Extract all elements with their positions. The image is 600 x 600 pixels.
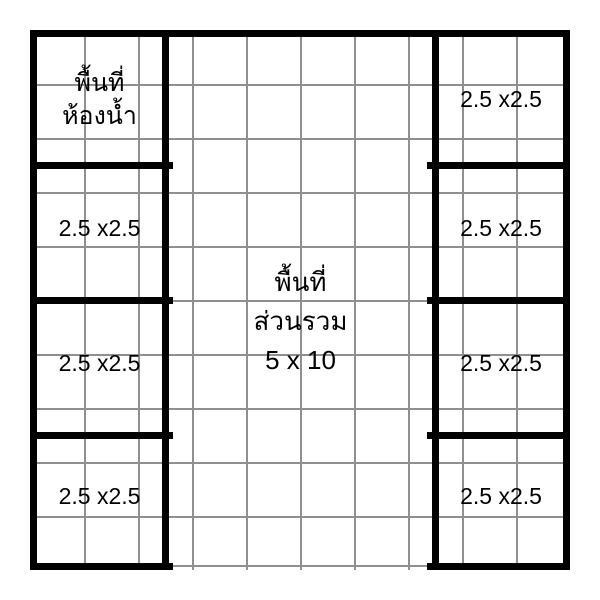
wall-right-separator-2 (427, 297, 570, 304)
wall-right-separator-1 (427, 162, 570, 169)
bathroom-label-line2: ห้องน้ำ (62, 100, 137, 133)
room-right-2-label: 2.5 x2.5 (460, 215, 542, 243)
wall-right-bottom (427, 563, 570, 570)
common-area-label: พื้นที่ ส่วนรวม 5 x 10 (169, 263, 432, 380)
common-area-line3: 5 x 10 (169, 341, 432, 380)
wall-left-bottom (30, 563, 173, 570)
common-area-line2: ส่วนรวม (169, 302, 432, 341)
room-left-4: 2.5 x2.5 (37, 439, 162, 563)
wall-left-separator-1 (30, 162, 173, 169)
floor-plan-canvas: พื้นที่ ห้องน้ำ 2.5 x2.5 2.5 x2.5 2.5 x2… (0, 0, 600, 600)
room-right-1-label: 2.5 x2.5 (460, 86, 542, 114)
room-right-4: 2.5 x2.5 (439, 439, 563, 563)
room-right-2: 2.5 x2.5 (439, 169, 563, 297)
wall-left-separator-2 (30, 297, 173, 304)
room-right-3-label: 2.5 x2.5 (460, 350, 542, 378)
room-left-3: 2.5 x2.5 (37, 304, 162, 432)
room-right-4-label: 2.5 x2.5 (460, 483, 542, 511)
room-left-2-label: 2.5 x2.5 (59, 215, 141, 243)
room-left-3-label: 2.5 x2.5 (59, 350, 141, 378)
wall-left-separator-3 (30, 432, 173, 439)
wall-right-separator-3 (427, 432, 570, 439)
bathroom-label: พื้นที่ ห้องน้ำ (62, 67, 137, 133)
room-right-1: 2.5 x2.5 (439, 37, 563, 162)
common-area-line1: พื้นที่ (169, 263, 432, 302)
room-bathroom: พื้นที่ ห้องน้ำ (37, 37, 162, 162)
room-left-2: 2.5 x2.5 (37, 169, 162, 297)
bathroom-label-line1: พื้นที่ (62, 67, 137, 100)
room-right-3: 2.5 x2.5 (439, 304, 563, 432)
wall-top (30, 30, 570, 37)
floor-plan: พื้นที่ ห้องน้ำ 2.5 x2.5 2.5 x2.5 2.5 x2… (30, 30, 570, 570)
room-left-4-label: 2.5 x2.5 (59, 483, 141, 511)
